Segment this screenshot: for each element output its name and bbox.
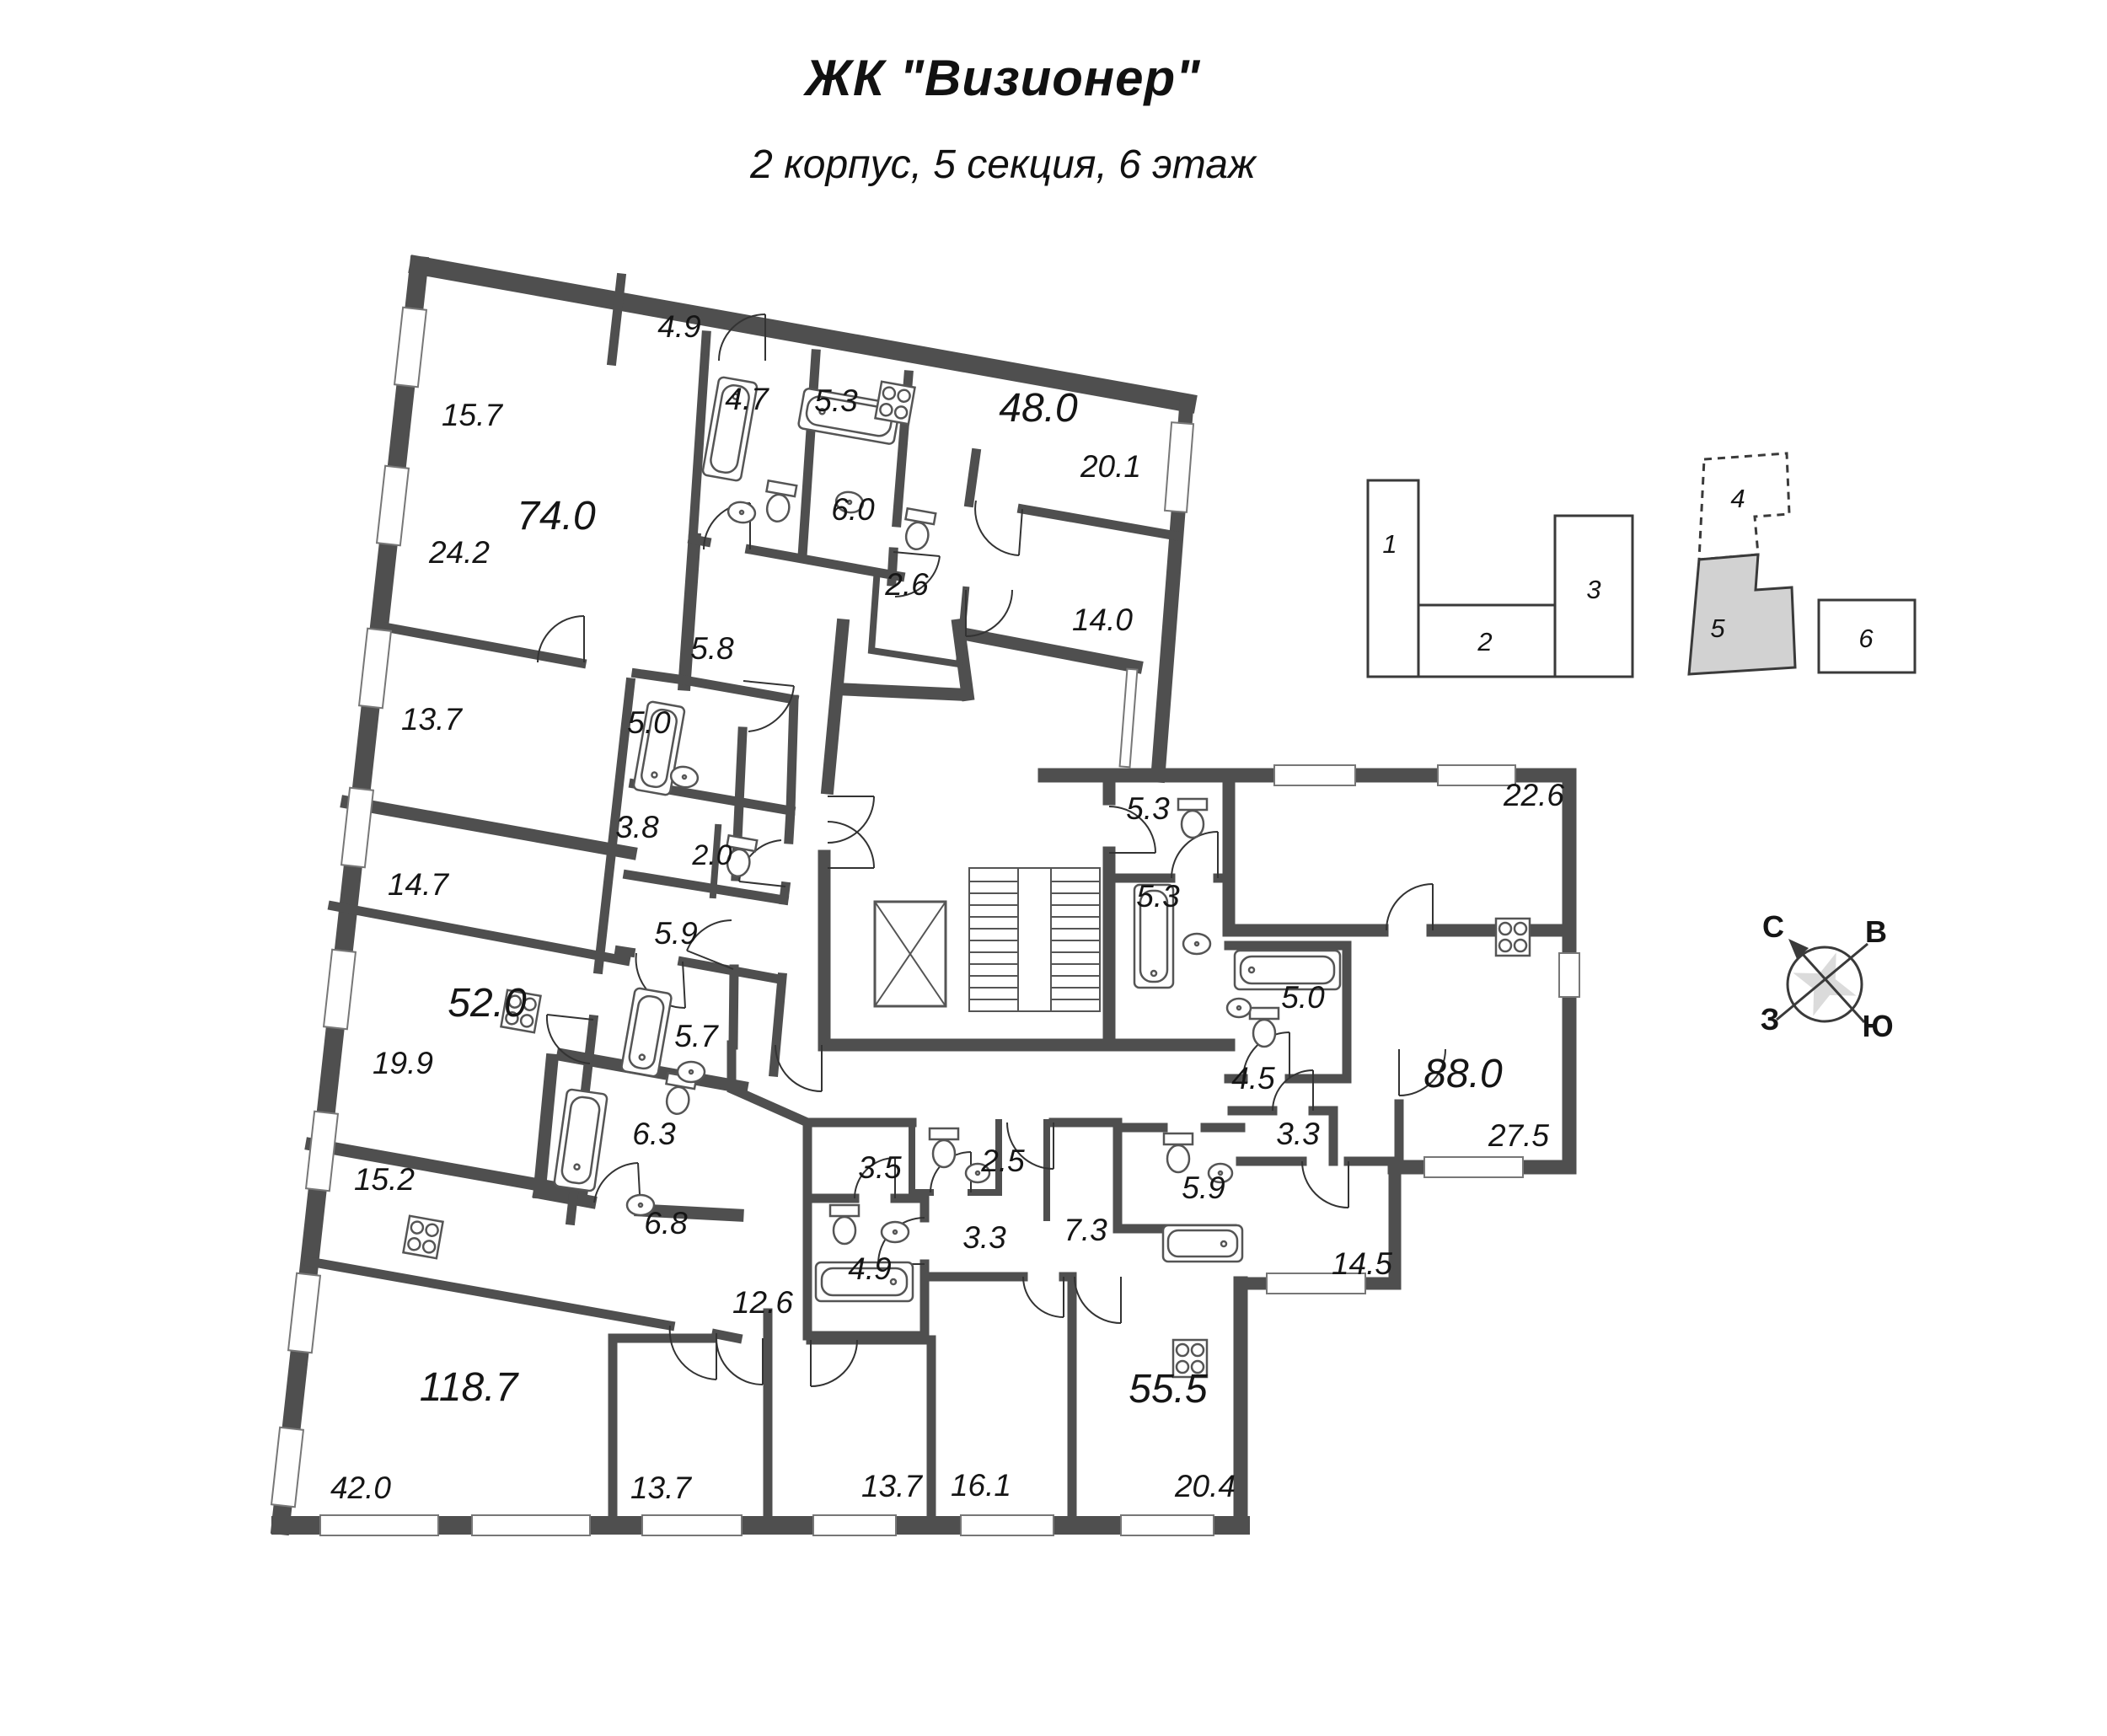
room-area-label: 5.0 <box>1281 980 1325 1015</box>
apartment-area-label: 88.0 <box>1423 1052 1503 1096</box>
toilet-icon <box>930 1128 958 1167</box>
toilet-icon <box>1250 1008 1279 1047</box>
room-area-label: 14.7 <box>388 867 449 902</box>
room-area-label: 5.9 <box>654 916 697 951</box>
room-area-label: 3.3 <box>962 1220 1006 1255</box>
bathtub-icon <box>621 988 673 1077</box>
bathtub-icon <box>1163 1225 1242 1262</box>
compass-east-label: В <box>1865 914 1887 949</box>
room-area-label: 5.3 <box>1126 791 1170 826</box>
room-area-label: 19.9 <box>373 1046 433 1080</box>
room-area-label: 5.3 <box>814 383 858 418</box>
room-area-label: 4.7 <box>725 382 769 416</box>
apartment-area-label: 55.5 <box>1129 1367 1208 1412</box>
room-area-label: 5.3 <box>1136 879 1180 914</box>
compass-north-label: С <box>1762 909 1784 944</box>
room-area-label: 6.3 <box>632 1117 676 1151</box>
room-area-label: 13.7 <box>401 702 463 737</box>
room-area-label: 6.8 <box>644 1206 688 1240</box>
room-area-label: 42.0 <box>330 1471 391 1505</box>
elevator-icon <box>875 902 946 1006</box>
room-area-label: 14.5 <box>1332 1246 1392 1281</box>
room-area-label: 13.7 <box>630 1471 692 1505</box>
room-area-label: 20.4 <box>1174 1469 1236 1503</box>
room-area-label: 24.2 <box>428 535 490 570</box>
toilet-icon <box>830 1205 859 1244</box>
keyplan-section-label: 3 <box>1586 575 1600 604</box>
compass-icon: СВЗЮ <box>1761 909 1894 1043</box>
room-area-label: 7.3 <box>1064 1213 1107 1247</box>
toilet-icon <box>1178 799 1207 838</box>
keyplan-section-label: 6 <box>1858 624 1874 653</box>
stove-icon <box>1496 919 1530 956</box>
sink-icon <box>1227 999 1251 1017</box>
toilet-icon <box>1164 1133 1193 1172</box>
keyplan-section-label: 4 <box>1730 484 1745 513</box>
sink-icon <box>882 1222 909 1242</box>
keyplan-section-5 <box>1689 555 1795 674</box>
stove-icon <box>875 382 914 424</box>
apartment-area-label: 48.0 <box>999 386 1078 431</box>
sink-icon <box>1183 934 1210 954</box>
apartment-area-label: 118.7 <box>420 1365 520 1410</box>
room-area-label: 22.6 <box>1503 778 1564 812</box>
room-area-label: 5.8 <box>690 631 734 666</box>
room-area-label: 3.8 <box>615 810 659 844</box>
floor-plan-page: ЖК "Визионер" 2 корпус, 5 секция, 6 этаж <box>0 0 2107 1736</box>
room-area-label: 15.7 <box>442 398 503 432</box>
floor-plan: 123456 СВЗЮ 4.915.74.75.348.020.174.06.0… <box>0 0 2107 1736</box>
room-area-label: 15.2 <box>354 1162 415 1197</box>
room-area-label: 2.0 <box>691 839 732 871</box>
apartment-area-label: 52.0 <box>448 981 527 1026</box>
room-area-label: 27.5 <box>1488 1118 1549 1153</box>
room-area-label: 3.3 <box>1276 1117 1320 1151</box>
room-area-label: 3.5 <box>858 1150 902 1185</box>
room-area-label: 5.7 <box>674 1019 719 1053</box>
keyplan-section-label: 2 <box>1477 627 1492 656</box>
room-area-label: 16.1 <box>951 1468 1011 1503</box>
toilet-icon <box>901 508 936 551</box>
room-area-label: 6.0 <box>831 492 875 527</box>
keyplan-section-label: 5 <box>1710 613 1725 643</box>
room-area-label: 4.9 <box>657 309 700 344</box>
apartment-area-label: 74.0 <box>517 494 596 538</box>
room-area-label: 14.0 <box>1072 603 1133 637</box>
sink-icon <box>678 1062 705 1082</box>
keyplan-section-1 <box>1368 480 1418 677</box>
room-area-label: 2.6 <box>884 567 929 602</box>
keyplan-section-label: 1 <box>1382 529 1397 559</box>
bathtub-icon <box>554 1089 608 1192</box>
compass-south-label: Ю <box>1862 1009 1893 1043</box>
room-area-label: 12.6 <box>732 1285 793 1320</box>
room-area-label: 5.9 <box>1182 1171 1225 1205</box>
room-area-label: 5.0 <box>627 705 671 740</box>
room-area-label: 4.9 <box>848 1251 891 1286</box>
stove-icon <box>403 1216 442 1258</box>
room-area-label: 4.5 <box>1231 1061 1275 1096</box>
sink-icon <box>726 500 757 524</box>
room-area-label: 13.7 <box>861 1469 923 1503</box>
stairs-icon <box>969 868 1100 1011</box>
compass-west-label: З <box>1761 1002 1780 1037</box>
room-area-label: 20.1 <box>1080 449 1141 484</box>
key-plan: 123456 <box>1368 453 1915 677</box>
toilet-icon <box>762 480 796 523</box>
room-area-label: 2.5 <box>980 1144 1025 1178</box>
